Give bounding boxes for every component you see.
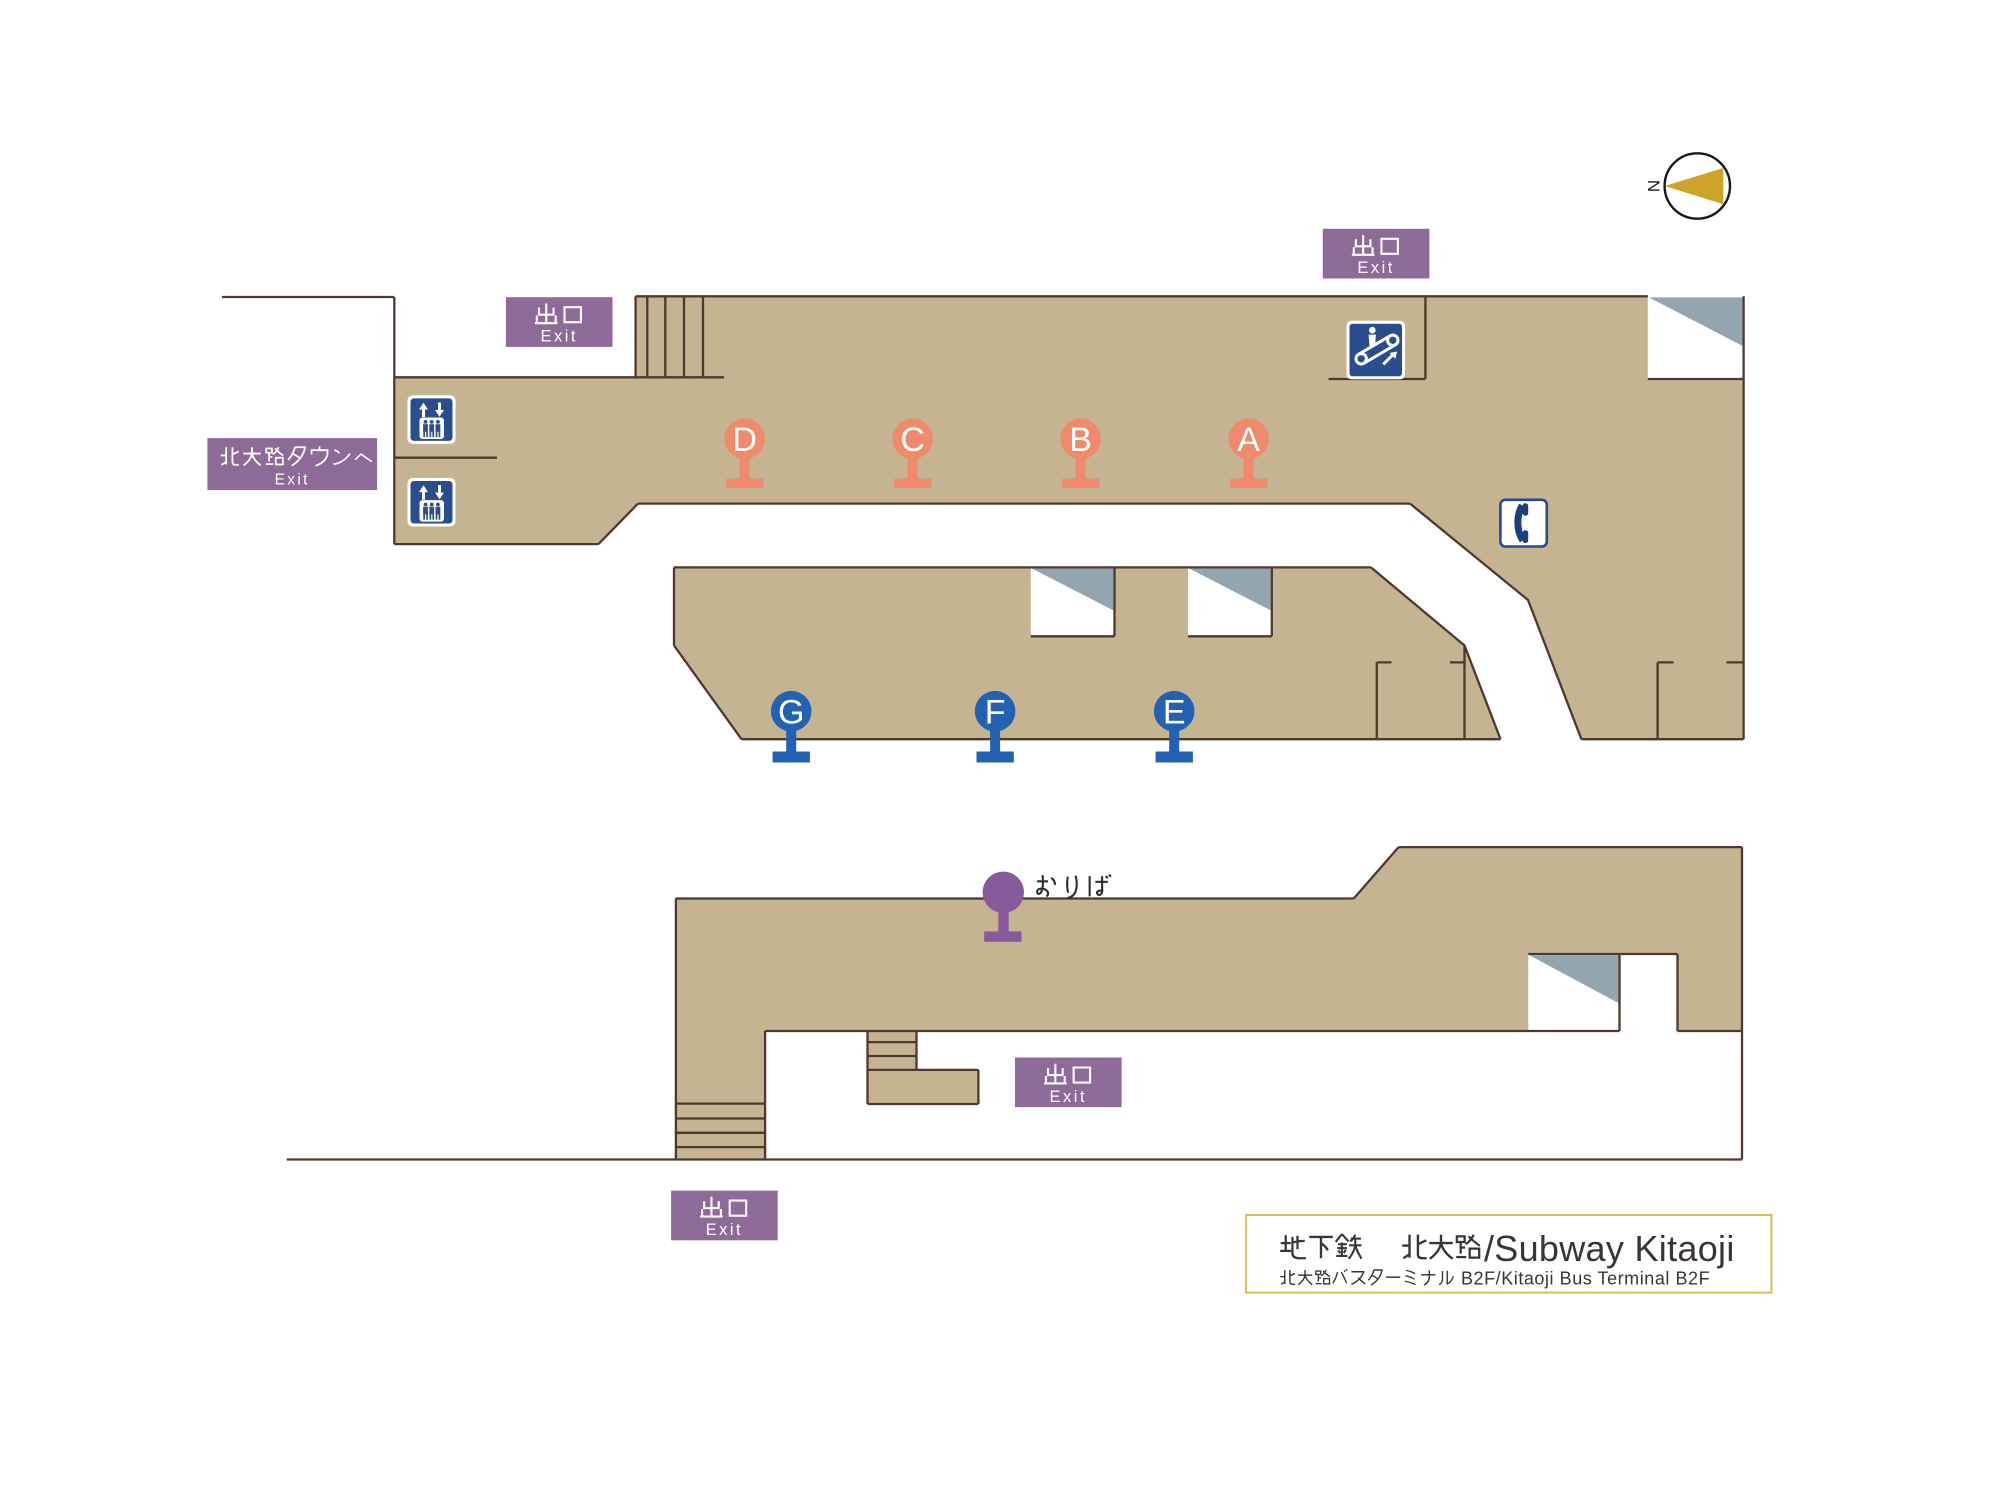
svg-text:N: N [1644, 180, 1663, 192]
svg-text:Exit: Exit [1050, 1088, 1088, 1106]
svg-text:/Subway Kitaoji: /Subway Kitaoji [1484, 1228, 1735, 1269]
svg-text:Exit: Exit [275, 472, 310, 489]
svg-text:Exit: Exit [540, 328, 578, 346]
svg-text:E: E [1163, 694, 1186, 732]
svg-text:B: B [1069, 421, 1092, 459]
svg-text:Exit: Exit [706, 1221, 744, 1239]
svg-text:Exit: Exit [1357, 259, 1395, 277]
svg-text:D: D [732, 421, 757, 459]
svg-text:C: C [900, 421, 925, 459]
svg-text:B2F/Kitaoji Bus Terminal B2F: B2F/Kitaoji Bus Terminal B2F [1461, 1269, 1710, 1289]
svg-text:A: A [1237, 421, 1260, 459]
svg-text:G: G [778, 694, 804, 732]
svg-text:F: F [985, 694, 1006, 732]
